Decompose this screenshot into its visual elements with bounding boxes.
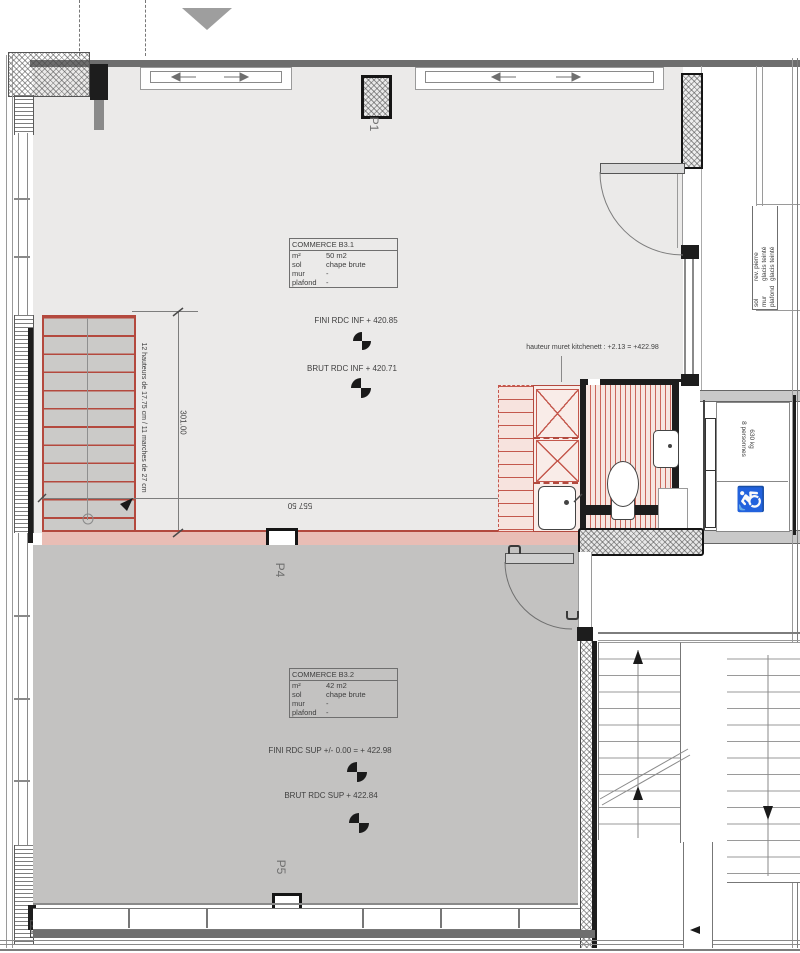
- cell-label: mur: [761, 281, 769, 307]
- projection-dashed-line: [145, 0, 146, 56]
- toilet-bowl: [607, 461, 639, 507]
- sink-faucet-dot: [564, 500, 569, 505]
- cell-label: plafond: [769, 281, 777, 307]
- stair-note: 12 hauteurs de 17.75 cm / 11 marches de …: [140, 305, 147, 530]
- b32-door-leaf: [505, 553, 574, 564]
- window-mullion: [362, 908, 364, 928]
- wall-segment: [94, 100, 104, 130]
- stair-walk-line: [87, 318, 88, 520]
- cell-value: -: [326, 699, 395, 708]
- stair-landing: [680, 642, 729, 843]
- washbasin: [653, 430, 679, 468]
- room-b32-name: COMMERCE B3.2: [290, 669, 397, 681]
- cell-label: m²: [292, 251, 326, 260]
- level-brut-b32: BRUT RDC SUP + 422.84: [251, 791, 411, 800]
- stair-top-line: [598, 632, 800, 634]
- glass-partition: [692, 259, 694, 377]
- elevator-wall-top: [700, 390, 800, 402]
- left-window-band-2: [18, 533, 28, 845]
- elevator-capacity-persons: 8 personnes: [739, 407, 747, 471]
- wall-cap: [681, 374, 699, 386]
- dim-width-text: 557 50: [272, 501, 328, 510]
- column-p1-label: P1: [362, 112, 386, 136]
- bottom-wall-outer-band: [33, 930, 595, 938]
- b32-door-opening: [578, 552, 592, 630]
- left-facade-line: [12, 55, 13, 948]
- cell-value: 50 m2: [326, 251, 395, 260]
- cell-label: sol: [292, 690, 326, 699]
- window-mullion: [206, 908, 208, 928]
- window-mullion: [440, 908, 442, 928]
- elevator-door-panel: [705, 470, 716, 528]
- column-p5-label: P5: [269, 855, 293, 879]
- cell-value: -: [326, 269, 395, 278]
- window-mullion: [128, 908, 130, 928]
- stair-bottom-line: [727, 882, 800, 883]
- terrace-edge-line: [0, 949, 800, 951]
- stair-side-wall: [592, 641, 597, 948]
- cell-label: plafond: [292, 708, 326, 717]
- cell-value: glacis teinté: [769, 207, 777, 281]
- glass-partition: [684, 259, 686, 377]
- door-hinge-symbol: [508, 545, 521, 554]
- door-leaf-entrance: [600, 163, 685, 174]
- terrace-line: [0, 940, 800, 941]
- window-mullion: [518, 908, 520, 928]
- window-mullion: [14, 698, 30, 700]
- room-b31-table: COMMERCE B3.1 m²50 m2 solchape brute mur…: [289, 238, 398, 288]
- corridor-wall-line: [762, 66, 763, 206]
- cell-label: mur: [292, 269, 326, 278]
- stair-stub: [683, 842, 713, 948]
- kitchenette-note: hauteur muret kitchenett : +2.13 = +422.…: [500, 344, 685, 351]
- room-b31-name: COMMERCE B3.1: [290, 239, 397, 251]
- exterior-stair-flight-a: [598, 642, 681, 840]
- elevator-cab-line: [716, 481, 788, 482]
- floor-plan-canvas: P1 COMMERCE B3.1 m²50 m2 solchape brute …: [0, 0, 800, 953]
- kitchenette-shelf-strip: [498, 385, 534, 532]
- door-jamb-line: [682, 165, 683, 248]
- leader-line: [561, 356, 562, 382]
- bottom-window-band: [33, 908, 580, 930]
- window-mullion: [14, 256, 30, 258]
- door-jamb-line: [677, 165, 678, 248]
- corridor-wall-line: [756, 310, 800, 311]
- exterior-stair-flight-b: [727, 642, 800, 882]
- elevator-capacity-label: 630 kg 8 personnes: [737, 407, 755, 471]
- bottom-wall-inner-line: [33, 903, 578, 905]
- entrance-triangle-icon: [182, 8, 232, 30]
- basin-faucet-dot: [668, 444, 672, 448]
- door-stop-symbol: [566, 611, 579, 620]
- corridor-wall-line: [756, 66, 757, 206]
- kitchenette-divider: [534, 482, 578, 484]
- window-mullion: [14, 615, 30, 617]
- room-b32-floor: [33, 545, 578, 905]
- terrace-line: [0, 944, 800, 945]
- kitchenette-cabinet: [536, 440, 579, 482]
- wall-column: [681, 73, 703, 169]
- cell-label: sol: [292, 260, 326, 269]
- cell-value: rev. pierre: [753, 207, 761, 281]
- cell-value: glacis teinté: [761, 207, 769, 281]
- cell-value: -: [326, 278, 395, 287]
- elevator-door-panel: [705, 418, 716, 474]
- column-p4-label: P4: [268, 558, 292, 582]
- cell-label: sol: [753, 281, 761, 307]
- cell-label: m²: [292, 681, 326, 690]
- window-mullion: [14, 198, 30, 200]
- level-brut-b31: BRUT RDC INF + 420.71: [272, 364, 432, 373]
- staircase-new: [42, 315, 136, 537]
- stair-side-wall: [28, 328, 33, 543]
- top-wall: [30, 60, 800, 67]
- wall-cap: [681, 245, 699, 259]
- cell-value: -: [326, 708, 395, 717]
- corridor-wall-line: [756, 204, 800, 205]
- projection-dashed-line: [79, 0, 80, 56]
- wheelchair-icon: ♿: [739, 484, 765, 514]
- wc-door-gap: [588, 379, 600, 385]
- elevator-capacity-kg: 630 kg: [747, 407, 755, 471]
- cell-label: plafond: [292, 278, 326, 287]
- top-window-1-slider: [150, 71, 282, 83]
- room-b32-table: COMMERCE B3.2 m²42 m2 solchape brute mur…: [289, 668, 398, 718]
- left-window-band-1: [18, 133, 28, 315]
- dim-stairs-text: 301.00: [179, 393, 188, 453]
- cell-label: mur: [292, 699, 326, 708]
- top-window-2-slider: [425, 71, 654, 83]
- cell-value: 42 m2: [326, 681, 395, 690]
- left-wall-insulation: [14, 95, 34, 135]
- side-finish-table: solrev. pierre murglacis teinté plafondg…: [752, 206, 778, 310]
- wall-jamb: [90, 64, 108, 100]
- cell-value: chape brute: [326, 260, 395, 269]
- top-left-wall-block: [8, 52, 90, 97]
- cell-value: chape brute: [326, 690, 395, 699]
- kitchen-sink: [538, 486, 576, 530]
- level-fini-b31: FINI RDC INF + 420.85: [276, 316, 436, 325]
- window-mullion: [14, 780, 30, 782]
- kitchenette-divider: [534, 437, 578, 439]
- wall-cap: [577, 627, 593, 641]
- level-fini-b32: FINI RDC SUP +/- 0.00 = + 422.98: [250, 746, 410, 755]
- elevator-wall-bottom: [700, 530, 800, 544]
- kitchenette-cabinet: [536, 389, 579, 438]
- left-facade-outer-line: [6, 55, 7, 948]
- wall-hatched-band: [578, 528, 704, 556]
- stair-top-line: [598, 640, 800, 641]
